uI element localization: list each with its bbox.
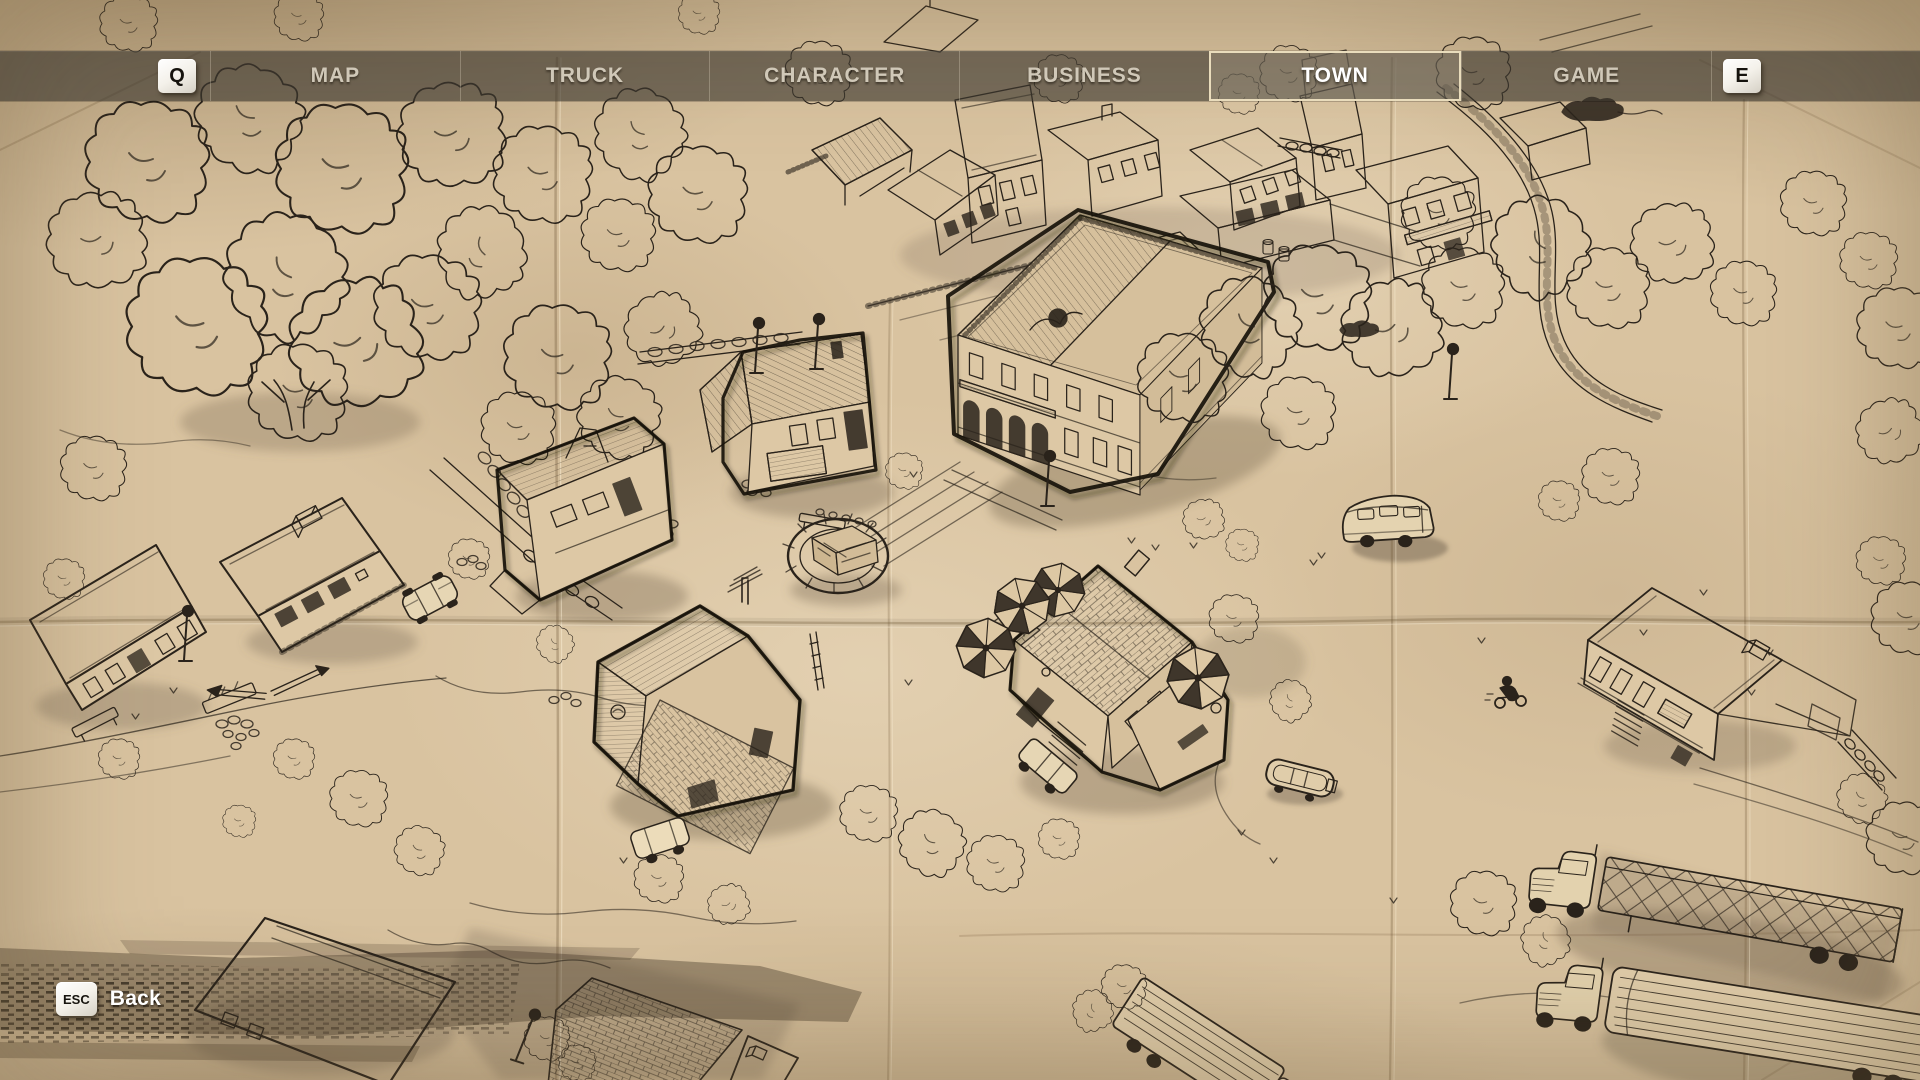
- tree: [1401, 177, 1475, 250]
- tab-town[interactable]: TOWN: [1209, 51, 1462, 101]
- tree: [1567, 248, 1650, 329]
- two-story-house[interactable]: [700, 333, 879, 498]
- e-key[interactable]: E: [1723, 59, 1761, 93]
- tree: [1620, 192, 1725, 296]
- tree: [1840, 232, 1898, 289]
- back-label: Back: [110, 987, 161, 1011]
- tab-game[interactable]: GAME: [1461, 51, 1711, 101]
- tab-map[interactable]: MAP: [210, 51, 460, 101]
- ink-blob: [1340, 321, 1378, 337]
- scooter-rider: [1485, 677, 1526, 709]
- nav-tabs: MAPTRUCKCHARACTERBUSINESSTOWNGAME: [210, 51, 1711, 101]
- hotkey-e-cell: E: [1711, 51, 1920, 101]
- tab-character[interactable]: CHARACTER: [709, 51, 959, 101]
- esc-key[interactable]: ESC: [56, 982, 97, 1016]
- tab-truck[interactable]: TRUCK: [460, 51, 710, 101]
- arrow-doodles: [206, 663, 332, 708]
- corner-shop: [30, 545, 206, 710]
- tab-business[interactable]: BUSINESS: [959, 51, 1209, 101]
- hotkey-q-cell: Q: [0, 51, 210, 101]
- tree: [1780, 171, 1846, 236]
- back-button[interactable]: ESC Back: [56, 982, 161, 1016]
- top-nav: Q MAPTRUCKCHARACTERBUSINESSTOWNGAME E: [0, 51, 1920, 101]
- tree: [1261, 377, 1335, 450]
- delivery-truck: [1104, 977, 1314, 1080]
- q-key[interactable]: Q: [158, 59, 196, 93]
- street-lamp: [1444, 344, 1459, 400]
- town-map-drawing: [0, 0, 1920, 1080]
